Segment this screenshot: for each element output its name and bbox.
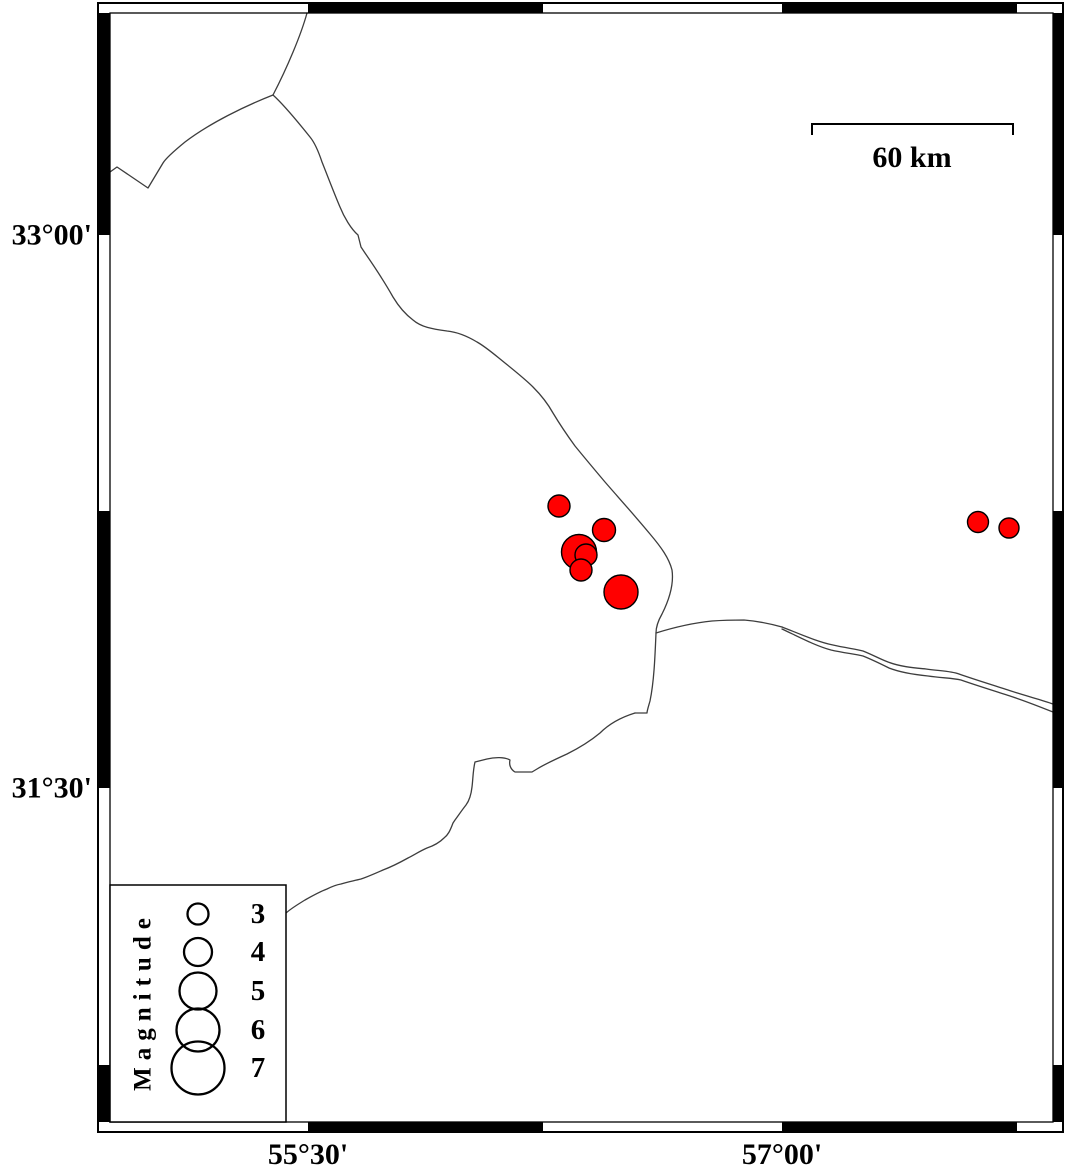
frame-segment-top bbox=[308, 3, 543, 13]
lat-label-33-00: 33°00' bbox=[12, 219, 92, 252]
frame-segment-bottom bbox=[782, 1122, 1017, 1132]
legend-entry-label: 6 bbox=[251, 1014, 266, 1046]
frame-segment-left bbox=[98, 511, 110, 788]
frame-segment-bottom bbox=[308, 1122, 543, 1132]
lon-label-55-30: 55°30' bbox=[268, 1138, 348, 1170]
frame-segment-right bbox=[1053, 511, 1063, 788]
legend-entry-label: 4 bbox=[251, 936, 266, 968]
seismicity-map-page: 60 km Magnitude 34567 33°00' 31°30' 55°3… bbox=[0, 0, 1066, 1170]
legend-title: Magnitude bbox=[130, 911, 157, 1091]
seismicity-map: 60 km Magnitude 34567 33°00' 31°30' 55°3… bbox=[0, 0, 1066, 1170]
epicenter-marker bbox=[604, 575, 638, 609]
road-upper bbox=[782, 627, 1053, 704]
frame-segment-left bbox=[98, 1065, 110, 1122]
boundary-west-branch bbox=[110, 95, 273, 188]
legend-entry-label: 7 bbox=[251, 1052, 266, 1084]
epicenter-marker bbox=[968, 512, 989, 533]
magnitude-legend: Magnitude 34567 bbox=[110, 885, 286, 1122]
epicenter-marker bbox=[593, 519, 616, 542]
frame-segment-top bbox=[782, 3, 1017, 13]
legend-entry-label: 3 bbox=[251, 898, 266, 930]
boundary-north-entry bbox=[273, 13, 307, 95]
frame-segment-right bbox=[1053, 13, 1063, 235]
frame-segment-left bbox=[98, 13, 110, 235]
lon-label-57-00: 57°00' bbox=[742, 1138, 822, 1170]
boundary-southwest bbox=[285, 713, 635, 914]
scale-bar-label: 60 km bbox=[872, 141, 951, 174]
earthquake-markers bbox=[548, 495, 1019, 609]
road-lower bbox=[782, 629, 1053, 712]
epicenter-marker bbox=[548, 495, 570, 517]
scale-bar-bracket bbox=[812, 124, 1013, 135]
boundary-main-diagonal bbox=[273, 95, 672, 713]
road-single bbox=[656, 620, 782, 633]
frame-segment-right bbox=[1053, 1065, 1063, 1122]
epicenter-marker bbox=[570, 559, 592, 581]
epicenter-marker bbox=[999, 518, 1019, 538]
lat-label-31-30: 31°30' bbox=[12, 772, 92, 805]
legend-entry-label: 5 bbox=[251, 975, 266, 1007]
scale-bar: 60 km bbox=[812, 124, 1013, 174]
